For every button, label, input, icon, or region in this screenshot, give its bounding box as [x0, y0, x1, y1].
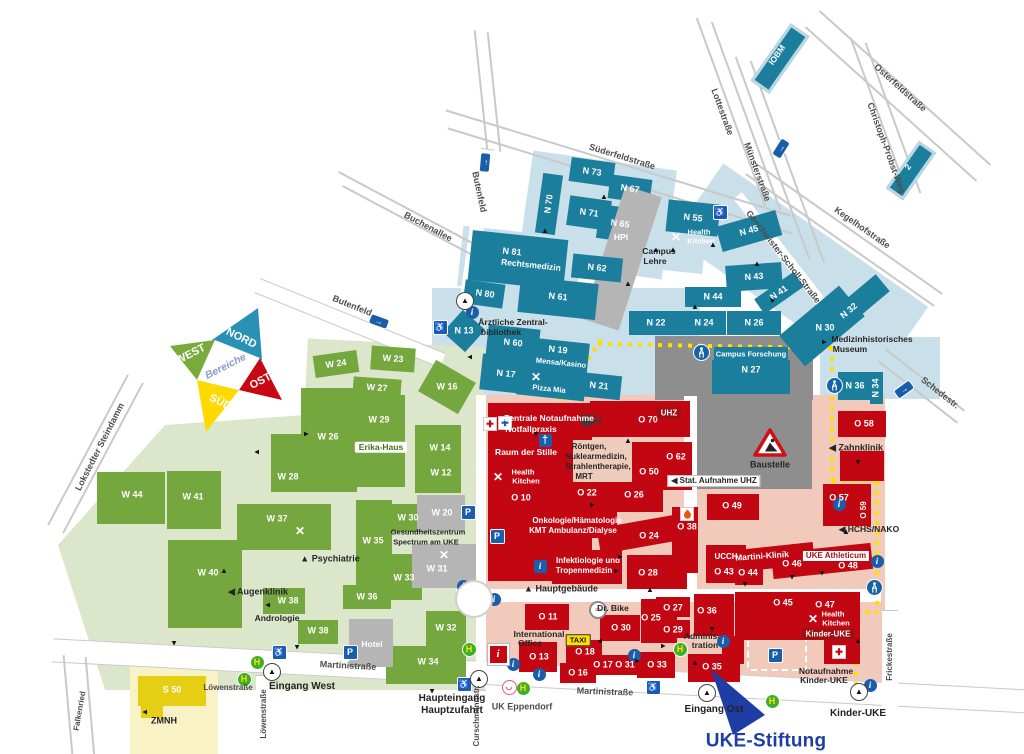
construction-glyph	[753, 428, 787, 458]
label-medizinhistorisches: Medizinhistorisches	[831, 335, 912, 344]
construction-icon	[753, 428, 787, 458]
label-zmnh: ZMNH	[151, 717, 177, 726]
label-andrologie: Andrologie	[255, 614, 300, 623]
label-o-33: O 33	[647, 661, 667, 670]
parking-icon: P	[461, 505, 476, 520]
entrance-arrow: ▲	[788, 573, 796, 581]
label-hotel: Hotel	[361, 640, 382, 649]
label-mrt: MRT	[575, 473, 592, 481]
bus-stop-icon: H	[516, 681, 531, 696]
label-taxi: TAXI	[566, 634, 591, 646]
label-health: Health	[688, 228, 711, 236]
entrance-arrow: ▲	[691, 303, 699, 311]
footpath-dotted	[830, 347, 834, 481]
label-nuklearmedizin: Nuklearmedizin,	[565, 453, 626, 461]
label-w-32: W 32	[435, 624, 456, 633]
street-line	[487, 32, 502, 152]
info-square-icon: i	[534, 560, 547, 573]
label-w-23: W 23	[382, 354, 404, 364]
entrance-arrow: ▲	[253, 448, 261, 456]
label-o-44: O 44	[738, 569, 758, 578]
label-n-44: N 44	[703, 293, 722, 302]
label-o-57: O 57	[829, 494, 849, 503]
label-erika-haus: Erika-Haus	[355, 442, 407, 453]
label-w-38: W 38	[307, 627, 328, 636]
wheelchair-icon: ♿	[713, 205, 728, 220]
entrance-arrow: ▲	[596, 637, 604, 645]
road	[476, 395, 486, 685]
label-kinder-uke: Kinder-UKE	[830, 709, 886, 719]
label-n-34: N 34	[872, 378, 881, 397]
label-o-10: O 10	[511, 494, 531, 503]
label-kegelhofstraße: Kegelhofstraße	[833, 206, 892, 251]
entrance-arrow: ▲	[428, 687, 436, 695]
building	[840, 451, 884, 481]
label-o-48: O 48	[838, 562, 858, 571]
label-w-16: W 16	[436, 383, 457, 392]
fork-knife-icon: ✕	[530, 371, 542, 383]
label-w-33: W 33	[393, 574, 414, 583]
pedestrian-glyph	[830, 380, 839, 391]
entrance-arrow: ▲	[818, 569, 826, 577]
label-hauptgebäude: ▲ Hauptgebäude	[524, 585, 598, 594]
entrance-arrow: ▲	[820, 338, 828, 346]
entrance-arrow: ▲	[220, 567, 228, 575]
entrance-arrow: ▲	[532, 430, 540, 438]
info-circle-icon: i	[871, 555, 884, 568]
entrance-arrow: ▲	[141, 708, 149, 716]
building	[415, 425, 461, 493]
label-raum-der-stille: Raum der Stille	[495, 448, 557, 457]
label-campus-forschung: Campus Forschung	[716, 350, 786, 358]
label-w-14: W 14	[429, 444, 450, 453]
fork-knife-icon: ✕	[294, 525, 306, 537]
label-gesundheitszentrum: Gesundheitszentrum	[391, 528, 466, 536]
entrance-arrow: ▲	[842, 528, 850, 536]
entrance-arrow: ▲	[624, 280, 632, 288]
label-uhz: UHZ	[657, 408, 681, 419]
entrance-icon: ▲	[456, 292, 474, 310]
label-w-37: W 37	[266, 515, 287, 524]
cross-red-icon: ✚	[832, 645, 846, 659]
pedestrian-icon	[693, 344, 710, 361]
parking-icon: P	[490, 529, 505, 544]
entrance-arrow: ▲	[588, 501, 596, 509]
flame-icon	[680, 507, 694, 521]
entrance-arrow: ▲	[646, 586, 654, 594]
label-eingang-ost: Eingang Ost	[685, 705, 744, 715]
entrance-arrow: ▲	[669, 246, 677, 254]
label-strahlentherapie: Strahlentherapie,	[565, 463, 630, 471]
label-dr-bike: Dr. Bike	[597, 604, 629, 613]
label-o-62: O 62	[666, 453, 686, 462]
label-w-26: W 26	[317, 433, 338, 442]
building	[237, 504, 331, 550]
label-n-62: N 62	[587, 263, 607, 274]
label-christoph-probst-weg: Christoph-Probst-Weg	[865, 101, 906, 194]
label-löwenstraße: Löwenstraße	[260, 689, 268, 738]
label-w-35: W 35	[362, 537, 383, 546]
label-onkologie-hämatologie: Onkologie/Hämatologie	[532, 517, 621, 525]
label-martinistraße: Martinistraße	[577, 687, 634, 698]
label-augenklinik: ◀ Augenklinik	[228, 588, 288, 597]
label-n-61: N 61	[548, 292, 568, 303]
label-n-19: N 19	[548, 345, 568, 356]
label-o-28: O 28	[638, 569, 658, 578]
label-n-17: N 17	[496, 369, 516, 380]
label-o-38: O 38	[677, 523, 697, 532]
entrance-icon: ▲	[850, 683, 868, 701]
cross-red-icon: ✚	[483, 417, 497, 431]
entrance-arrow: ▲	[466, 353, 474, 361]
parking-icon: P	[343, 645, 358, 660]
entrance-arrow: ▲	[753, 260, 761, 268]
entrance-arrow: ▲	[741, 580, 749, 588]
label-o-70: O 70	[638, 416, 658, 425]
flame-glyph	[683, 509, 692, 519]
label-uk-eppendorf: UK Eppendorf	[492, 703, 553, 712]
label-tration: tration	[692, 641, 718, 650]
label-kitchen: Kitchen	[512, 477, 540, 485]
compass-bereiche: NORDWESTOSTSÜDBereiche	[160, 300, 290, 435]
entrance-arrow: ▲	[302, 430, 310, 438]
label-museum: Museum	[833, 345, 867, 354]
entrance-arrow: ▲	[293, 643, 301, 651]
entrance-arrow: ▲	[708, 625, 716, 633]
pedestrian-icon	[826, 377, 843, 394]
label-w-20: W 20	[431, 509, 452, 518]
label-office: Office	[518, 639, 542, 648]
label-health: Health	[512, 468, 535, 476]
label-n-60: N 60	[503, 338, 523, 349]
fork-knife-icon: ✕	[807, 613, 819, 625]
label-w-34: W 34	[417, 658, 438, 667]
label-o-36: O 36	[697, 607, 717, 616]
label-o-59: O 59	[860, 501, 868, 518]
label-w-27: W 27	[366, 383, 388, 393]
label-zentrale-notaufnahme: Zentrale Notaufnahme	[504, 414, 594, 423]
label-n-13: N 13	[454, 327, 473, 336]
entrance-arrow: ▲	[170, 639, 178, 647]
label-o-35: O 35	[702, 663, 722, 672]
label-tropenmedizin: Tropenmedizin	[556, 567, 612, 575]
label-o-25: O 25	[641, 614, 661, 623]
label-kinder-uke: Kinder-UKE	[802, 629, 855, 640]
label-w-44: W 44	[121, 491, 142, 500]
entrance-arrow: ▲	[709, 241, 717, 249]
label-baustelle: Baustelle	[750, 461, 790, 470]
fork-knife-icon: ✕	[670, 231, 682, 243]
label-eingang-west: Eingang West	[269, 682, 335, 692]
label-psychiatrie: ▲ Psychiatrie	[300, 555, 359, 564]
label-n-24: N 24	[694, 319, 713, 328]
label-o-30: O 30	[611, 624, 631, 633]
street-line	[474, 30, 489, 150]
label-n-43: N 43	[744, 272, 764, 282]
label-o-22: O 22	[577, 489, 597, 498]
label-stat-aufnahme-uhz: ◀ Stat. Aufnahme UHZ	[667, 475, 760, 487]
stift-arrow-glyph	[709, 667, 771, 737]
label-w-29: W 29	[368, 416, 389, 425]
label-frickestraße: Frickestraße	[886, 633, 894, 681]
label-n-26: N 26	[744, 319, 763, 328]
entrance-arrow: ▲	[854, 458, 862, 466]
label-spectrum-am-uke: Spectrum am UKE	[393, 538, 458, 546]
label-w-38: W 38	[277, 597, 298, 606]
label-ärztliche-zentral: Ärztliche Zentral-	[478, 318, 547, 327]
label-w-36: W 36	[356, 593, 377, 602]
street-line	[63, 655, 74, 754]
chapel-icon: †	[539, 434, 552, 447]
wheelchair-icon: ♿	[272, 645, 287, 660]
label-o-46: O 46	[782, 560, 802, 569]
pedestrian-glyph	[870, 582, 879, 593]
building	[271, 434, 303, 492]
oneway-icon: →	[771, 137, 791, 160]
label-n-22: N 22	[646, 319, 665, 328]
label-o-43: O 43	[714, 568, 734, 577]
label-löwenstraße: Löwenstraße	[203, 684, 252, 692]
label-kinder-uke: Kinder-UKE	[800, 676, 848, 685]
pedestrian-glyph	[697, 347, 706, 358]
label-hpi: HPI	[614, 233, 628, 242]
label-falkenried: Falkenried	[73, 691, 88, 732]
entrance-arrow: ▲	[600, 193, 608, 201]
label-kitchen: Kitchen	[822, 619, 850, 627]
label-o-26: O 26	[624, 491, 644, 500]
entrance-arrow: ▲	[612, 567, 620, 575]
label-kmt-ambulanz-dialyse: KMT Ambulanz/Dialyse	[529, 527, 617, 535]
bus-stop-icon: H	[462, 642, 477, 657]
label-w-12: W 12	[430, 469, 451, 478]
uke-campus-map: NORDWESTOSTSÜDBereiche✚✚†✚✕✕✕✕✕✕iiiiiiii…	[0, 0, 1024, 754]
label-s-50: S 50	[163, 686, 182, 695]
entrance-arrow: ▲	[624, 437, 632, 445]
label-o-49: O 49	[722, 502, 742, 511]
label-o-24: O 24	[639, 532, 659, 541]
pedestrian-icon	[866, 579, 883, 596]
entrance-icon: ▲	[263, 663, 281, 681]
label-notfallpraxis: Notfallpraxis	[505, 425, 557, 434]
label-o-18: O 18	[575, 648, 595, 657]
label-hauptzufahrt: Hauptzufahrt	[421, 706, 483, 716]
label-w-31: W 31	[426, 565, 447, 574]
label-o-13: O 13	[529, 653, 549, 662]
label-o-17: O 17	[593, 661, 613, 670]
bus-stop-icon: H	[673, 642, 688, 657]
label-uke-athleticum: UKE Athleticum	[803, 551, 869, 561]
bus-stop-icon: H	[250, 655, 265, 670]
street-line	[85, 657, 96, 754]
stift-arrow-icon	[709, 667, 771, 737]
label-n-55: N 55	[683, 213, 703, 224]
label-o-31: O 31	[615, 661, 635, 670]
road	[882, 610, 898, 754]
label-o-47: O 47	[815, 601, 835, 610]
label-o-16: O 16	[568, 669, 588, 678]
label-n-30: N 30	[815, 324, 834, 333]
wheelchair-icon: ♿	[433, 320, 448, 335]
label-w-30: W 30	[397, 514, 418, 523]
entrance-arrow: ▲	[659, 642, 667, 650]
parking-icon: P	[768, 648, 783, 663]
label-röntgen: Röntgen,	[572, 443, 607, 451]
roundabout-icon	[455, 580, 493, 618]
label-lehre: Lehre	[643, 257, 666, 266]
label-o-58: O 58	[854, 420, 874, 429]
entrance-arrow: ▲	[616, 553, 624, 561]
building	[168, 540, 242, 628]
info-circle-icon: i	[533, 668, 546, 681]
label-o-50: O 50	[639, 468, 659, 477]
label-o-29: O 29	[663, 626, 683, 635]
entrance-arrow: ▲	[854, 637, 862, 645]
entrance-arrow: ▲	[264, 601, 272, 609]
label-o-11: O 11	[538, 613, 557, 622]
label-bibliothek: bibliothek	[481, 328, 521, 337]
entrance-arrow: ▲	[652, 246, 660, 254]
entrance-arrow: ▲	[633, 657, 641, 665]
label-n-21: N 21	[589, 381, 609, 392]
label-o-45: O 45	[773, 599, 793, 608]
transit-icon: ◡	[502, 680, 517, 695]
entrance-arrow: ▲	[691, 659, 699, 667]
label-infektiologie-und: Infektiologie und	[556, 557, 620, 565]
label-w-40: W 40	[197, 569, 218, 578]
fork-knife-icon: ✕	[492, 471, 504, 483]
label-w-41: W 41	[182, 493, 203, 502]
label-n-36: N 36	[845, 382, 864, 391]
label-w-28: W 28	[277, 473, 298, 482]
label-zahnklinik: ◀ Zahnklinik	[829, 444, 883, 453]
label-n-27: N 27	[741, 366, 760, 375]
wheelchair-icon: ♿	[646, 680, 661, 695]
fork-knife-icon: ✕	[438, 549, 450, 561]
label-n-81: N 81	[502, 247, 522, 258]
info-main-icon: i	[488, 644, 509, 665]
oneway-icon: →	[479, 152, 492, 173]
label-uke-stiftung: UKE-Stiftung	[706, 732, 827, 751]
label-health: Health	[822, 610, 845, 618]
label-o-27: O 27	[663, 604, 683, 613]
entrance-arrow: ▲	[541, 227, 549, 235]
